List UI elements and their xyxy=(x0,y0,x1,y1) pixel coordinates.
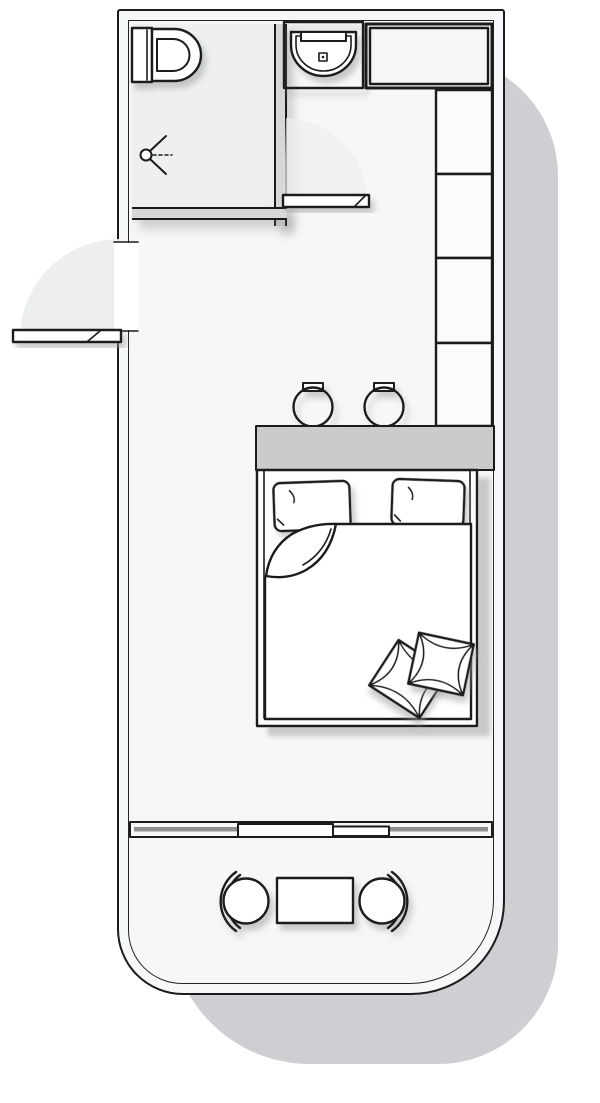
inner-wall-line xyxy=(128,20,494,984)
bathroom-wall-horizontal xyxy=(132,207,287,220)
bathroom-wall-vertical xyxy=(274,24,287,226)
entry-door-swing-area xyxy=(20,239,121,337)
floor-plan-canvas xyxy=(0,0,600,1103)
entry-door-leaf xyxy=(13,330,121,342)
entry-door-leaf-wedge xyxy=(88,331,100,341)
plan-outline xyxy=(117,9,505,995)
entry-door-swing-arc xyxy=(20,239,121,332)
